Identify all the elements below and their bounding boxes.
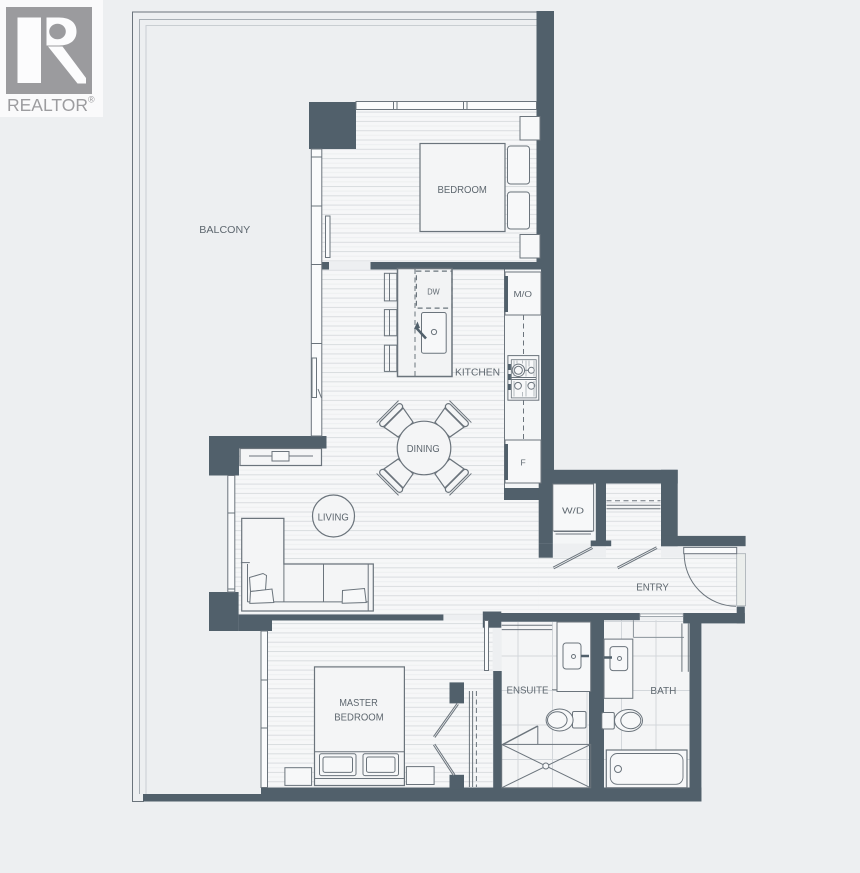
svg-text:BALCONY: BALCONY (199, 224, 250, 236)
svg-text:®: ® (88, 95, 95, 105)
svg-text:KITCHEN: KITCHEN (455, 367, 500, 379)
svg-text:M/O: M/O (514, 289, 533, 299)
svg-text:W/D: W/D (562, 506, 584, 516)
svg-text:BATH: BATH (650, 685, 676, 697)
svg-text:BEDROOM: BEDROOM (438, 184, 487, 196)
svg-text:BEDROOM: BEDROOM (334, 712, 383, 724)
svg-text:ENTRY: ENTRY (636, 582, 669, 594)
svg-text:F: F (521, 458, 526, 468)
svg-text:DINING: DINING (407, 443, 440, 455)
svg-text:MASTER: MASTER (339, 697, 378, 709)
svg-text:DW: DW (427, 287, 439, 297)
svg-text:REALTOR: REALTOR (7, 95, 88, 115)
svg-text:ENSUITE: ENSUITE (507, 685, 549, 697)
svg-text:LIVING: LIVING (318, 512, 349, 524)
